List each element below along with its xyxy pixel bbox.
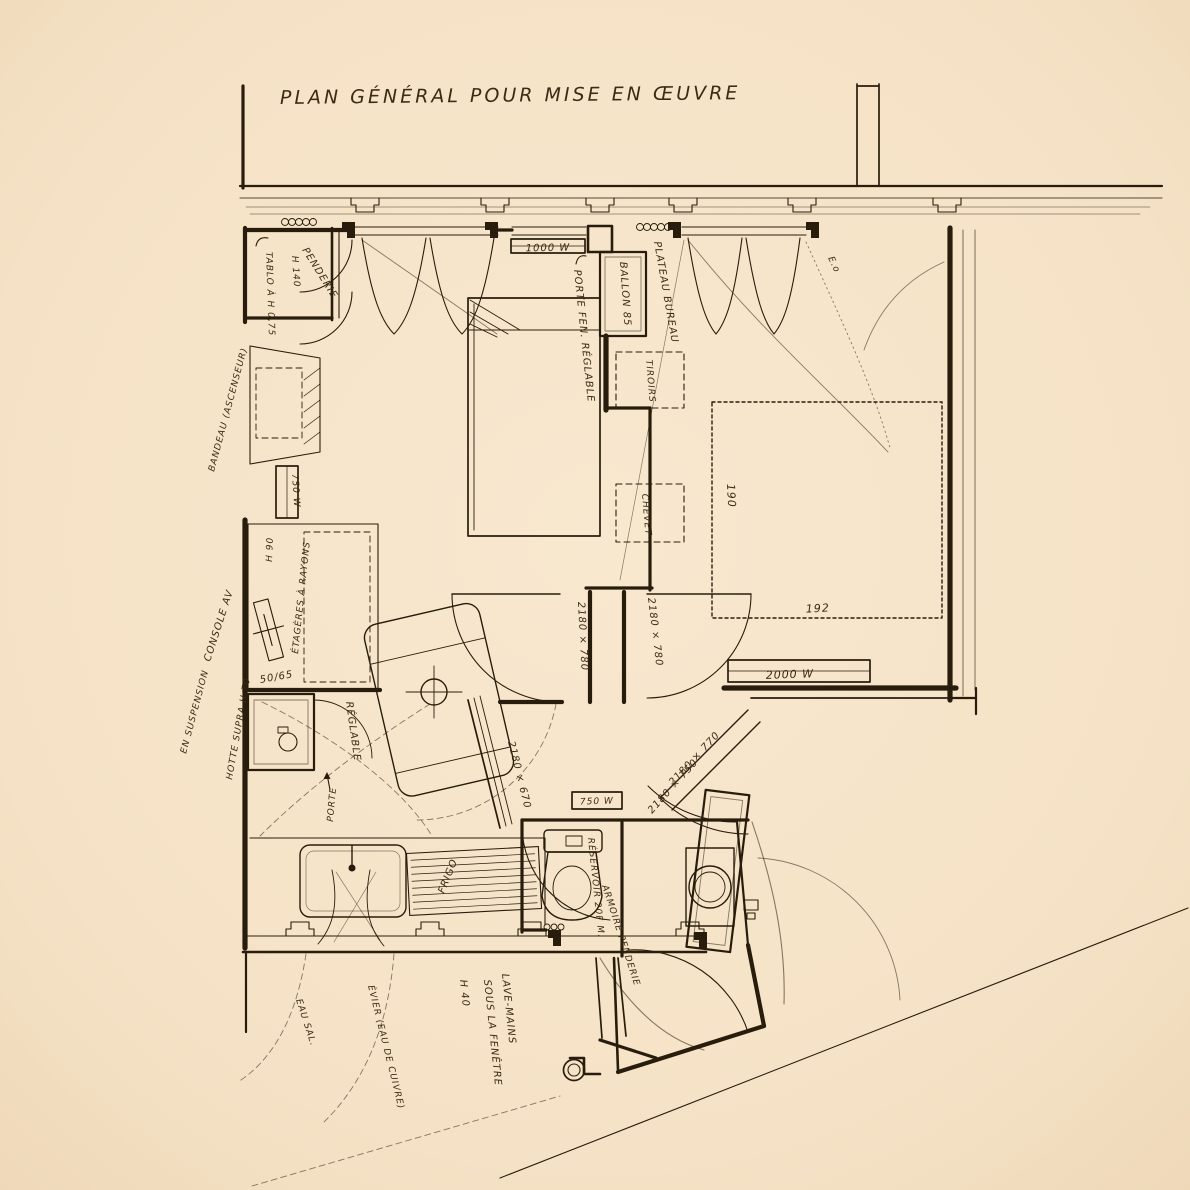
floor-plan-svg: PLAN GÉNÉRAL POUR MISE EN ŒUVRE	[0, 0, 1190, 1190]
radiator-wc-label: 750 W	[580, 796, 614, 807]
plan-title: PLAN GÉNÉRAL POUR MISE EN ŒUVRE	[280, 81, 741, 109]
label-bed-length: 192	[805, 601, 830, 615]
label-h90: H 90	[265, 537, 276, 562]
paper-background	[0, 0, 1190, 1190]
radiator-bedroom-label: 2000 W	[765, 667, 814, 682]
radiator-living-label: 1000 W	[526, 243, 571, 255]
label-bed-width: 190	[724, 483, 738, 508]
drawing-sheet: PLAN GÉNÉRAL POUR MISE EN ŒUVRE	[0, 0, 1190, 1190]
